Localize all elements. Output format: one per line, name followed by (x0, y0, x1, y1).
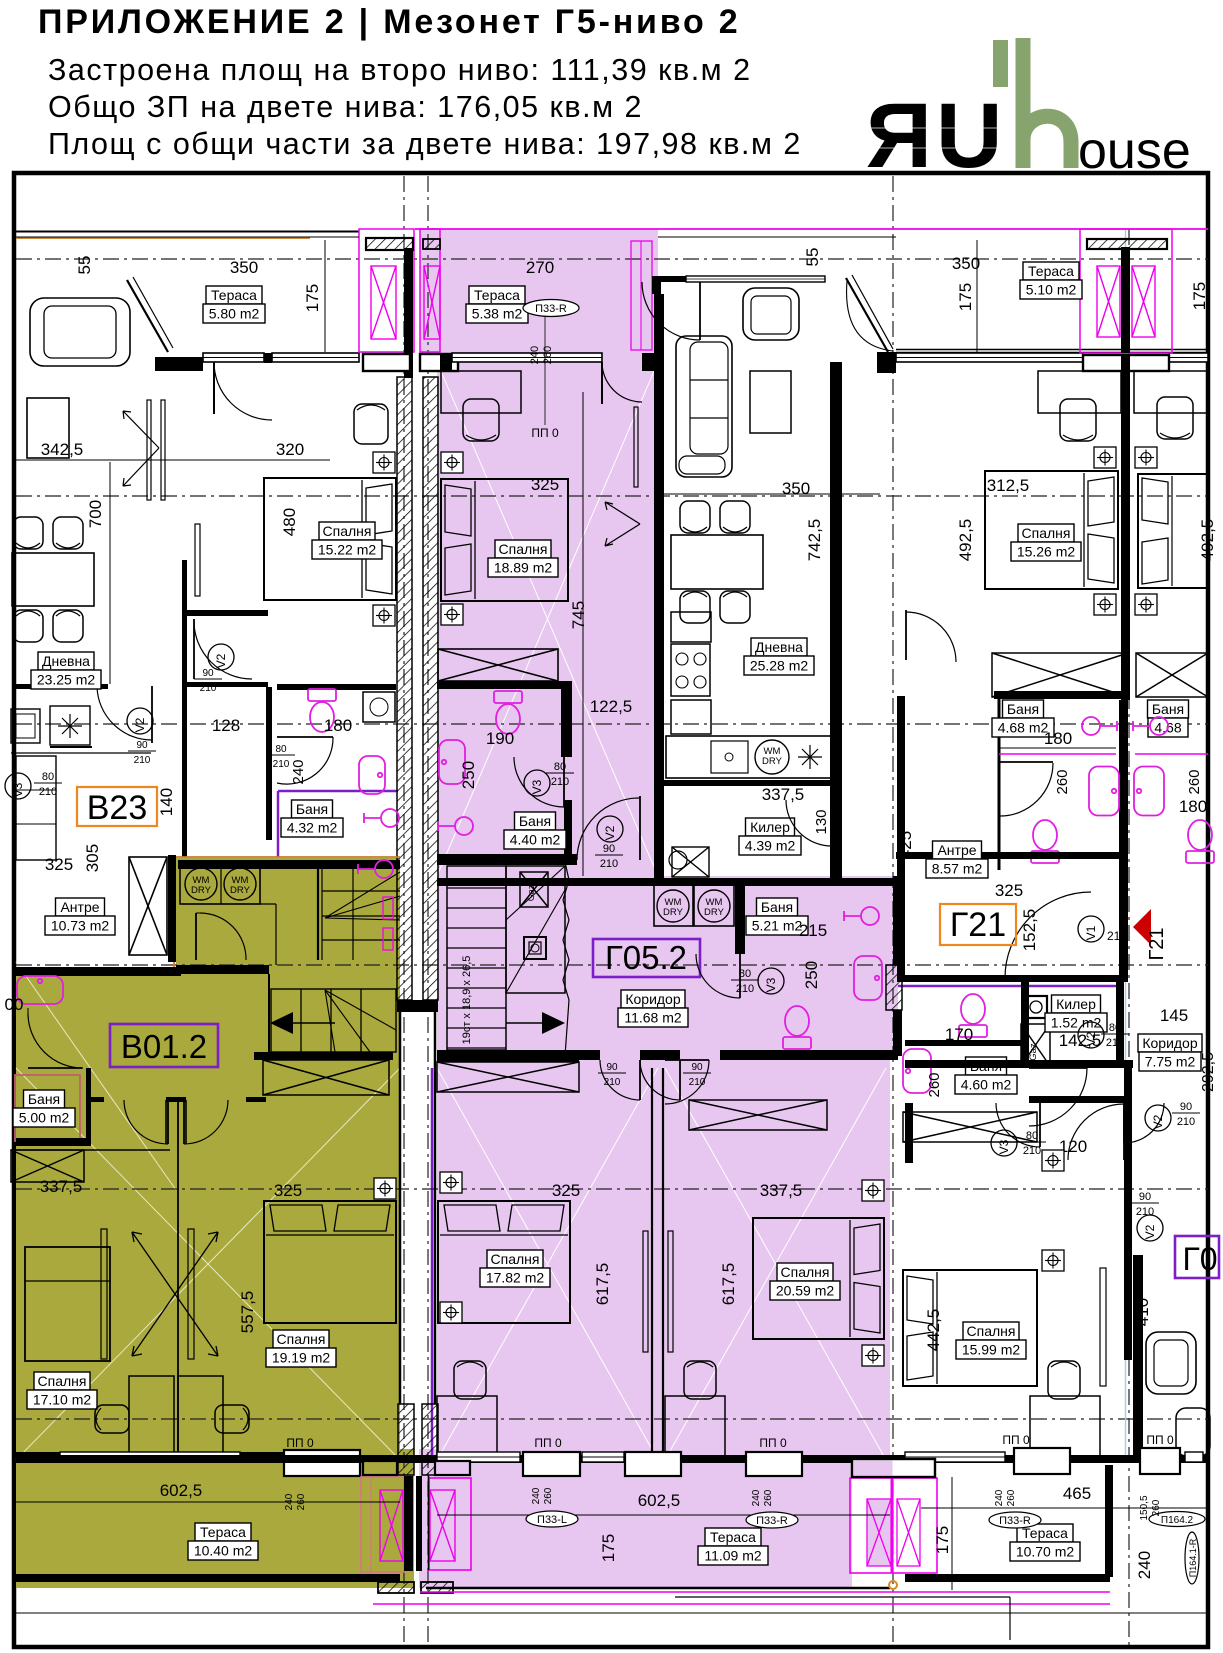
svg-text:Gaz: Gaz (1028, 1043, 1039, 1061)
svg-text:4.39 m2: 4.39 m2 (745, 838, 796, 854)
svg-text:Коридор: Коридор (625, 991, 681, 1007)
svg-text:325: 325 (995, 881, 1023, 900)
svg-text:ПП 0: ПП 0 (759, 1436, 787, 1450)
svg-text:Коридор: Коридор (1142, 1035, 1198, 1051)
svg-text:175: 175 (599, 1534, 618, 1562)
svg-text:17.10 m2: 17.10 m2 (33, 1392, 92, 1408)
svg-text:210: 210 (200, 683, 217, 694)
svg-text:80: 80 (42, 771, 54, 783)
svg-text:215: 215 (799, 921, 827, 940)
svg-text:492,5: 492,5 (956, 519, 975, 562)
svg-text:Дневна: Дневна (42, 653, 90, 669)
svg-text:240: 240 (994, 1489, 1005, 1506)
svg-text:90: 90 (691, 1062, 703, 1073)
svg-text:90: 90 (1180, 1101, 1192, 1113)
svg-text:Тераса: Тераса (211, 287, 257, 303)
svg-text:175: 175 (956, 283, 975, 311)
svg-text:130: 130 (813, 809, 830, 834)
svg-text:180: 180 (1179, 797, 1207, 816)
svg-text:260: 260 (763, 1489, 774, 1506)
svg-text:260: 260 (543, 1487, 554, 1504)
svg-text:Антре: Антре (60, 899, 99, 915)
svg-text:90: 90 (136, 740, 148, 751)
svg-text:Спалня: Спалня (323, 523, 372, 539)
svg-text:Тераса: Тераса (1028, 263, 1074, 279)
svg-text:80: 80 (275, 744, 287, 755)
svg-text:210: 210 (1107, 929, 1127, 943)
svg-text:210: 210 (273, 759, 290, 770)
svg-text:617,5: 617,5 (719, 1263, 738, 1306)
svg-text:150,5: 150,5 (1139, 1495, 1150, 1520)
svg-text:240: 240 (529, 346, 541, 364)
svg-text:17.82 m2: 17.82 m2 (486, 1270, 545, 1286)
svg-text:10.73 m2: 10.73 m2 (51, 918, 110, 934)
svg-text:90: 90 (603, 843, 615, 855)
svg-text:V2: V2 (214, 653, 228, 668)
svg-text:10.70 m2: 10.70 m2 (1016, 1544, 1075, 1560)
svg-text:Баня: Баня (1007, 701, 1039, 717)
svg-text:4.32 m2: 4.32 m2 (287, 820, 338, 836)
svg-text:П33-R: П33-R (999, 1515, 1031, 1527)
svg-text:337,5: 337,5 (760, 1181, 803, 1200)
svg-text:19.19 m2: 19.19 m2 (272, 1350, 331, 1366)
svg-text:Спалня: Спалня (38, 1373, 87, 1389)
svg-text:250: 250 (802, 961, 821, 989)
svg-text:Спалня: Спалня (499, 541, 548, 557)
svg-text:23.25 m2: 23.25 m2 (37, 672, 96, 688)
svg-text:Баня: Баня (519, 813, 551, 829)
svg-text:260: 260 (1151, 1499, 1162, 1516)
svg-text:Г21: Г21 (1146, 927, 1168, 960)
svg-text:80: 80 (739, 968, 751, 980)
svg-text:П33-L: П33-L (537, 1514, 567, 1526)
svg-text:19ст x 18,9 x 26,5: 19ст x 18,9 x 26,5 (461, 956, 473, 1045)
svg-text:ПРИЛОЖЕНИЕ 2 | Мезонет Г5-ниво: ПРИЛОЖЕНИЕ 2 | Мезонет Г5-ниво 2 (38, 3, 741, 41)
svg-text:8.57 m2: 8.57 m2 (932, 861, 983, 877)
svg-text:312,5: 312,5 (987, 476, 1030, 495)
svg-text:140: 140 (157, 788, 176, 816)
svg-text:25.28 m2: 25.28 m2 (750, 658, 809, 674)
svg-text:240: 240 (531, 1487, 542, 1504)
svg-text:7.75 m2: 7.75 m2 (1145, 1054, 1196, 1070)
svg-text:55: 55 (75, 256, 94, 275)
svg-text:240: 240 (1135, 1551, 1154, 1579)
svg-text:210: 210 (604, 1077, 621, 1088)
svg-text:Килер: Килер (750, 819, 790, 835)
svg-text:DRY: DRY (663, 907, 684, 918)
svg-text:260: 260 (1054, 769, 1071, 794)
svg-text:465: 465 (1063, 1484, 1091, 1503)
svg-text:15.22 m2: 15.22 m2 (318, 542, 377, 558)
svg-text:V3: V3 (530, 779, 544, 794)
svg-text:480: 480 (280, 508, 299, 536)
svg-text:Баня: Баня (761, 899, 793, 915)
svg-text:Застроена площ на второ ниво:: Застроена площ на второ ниво: 111,39 кв.… (48, 53, 752, 87)
svg-text:90: 90 (606, 1062, 618, 1073)
svg-text:240: 240 (751, 1489, 762, 1506)
svg-text:П164.1-R: П164.1-R (1188, 1538, 1198, 1577)
svg-text:210: 210 (551, 776, 569, 788)
svg-text:V2: V2 (603, 825, 617, 840)
svg-text:175: 175 (303, 284, 322, 312)
svg-text:240: 240 (284, 1493, 295, 1510)
svg-text:325: 325 (531, 475, 559, 494)
svg-text:602,5: 602,5 (638, 1491, 681, 1510)
svg-text:4.68 m2: 4.68 m2 (998, 720, 1049, 736)
svg-text:V2: V2 (133, 717, 147, 732)
svg-text:Антре: Антре (937, 842, 976, 858)
svg-text:DRY: DRY (762, 756, 783, 767)
svg-text:11.09 m2: 11.09 m2 (704, 1548, 762, 1564)
svg-text:Gaz: Gaz (526, 884, 536, 901)
svg-text:ПП 0: ПП 0 (286, 1436, 314, 1450)
svg-text:В01.2: В01.2 (121, 1028, 207, 1065)
svg-text:90: 90 (1139, 1191, 1151, 1203)
svg-text:170: 170 (945, 1025, 973, 1044)
svg-text:180: 180 (1044, 729, 1072, 748)
svg-text:80: 80 (554, 761, 566, 773)
svg-text:90: 90 (202, 668, 214, 679)
svg-text:260: 260 (542, 346, 554, 364)
svg-text:210: 210 (39, 786, 57, 798)
svg-text:557,5: 557,5 (238, 1291, 257, 1334)
svg-text:5.21 m2: 5.21 m2 (752, 918, 803, 934)
svg-text:П33-R: П33-R (756, 1515, 788, 1527)
svg-text:DRY: DRY (230, 885, 251, 896)
svg-text:4.40 m2: 4.40 m2 (510, 832, 561, 848)
svg-text:442,5: 442,5 (924, 1309, 943, 1352)
svg-text:55: 55 (803, 248, 822, 267)
svg-text:260: 260 (1186, 769, 1203, 794)
svg-text:700: 700 (86, 500, 105, 528)
svg-text:Общо ЗП на двете нива: 176,05: Общо ЗП на двете нива: 176,05 кв.м 2 (48, 90, 643, 124)
svg-text:325: 325 (45, 855, 73, 874)
svg-text:617,5: 617,5 (593, 1263, 612, 1306)
svg-text:350: 350 (952, 254, 980, 273)
svg-text:210: 210 (1136, 1206, 1154, 1218)
svg-text:250: 250 (459, 761, 478, 789)
svg-text:210: 210 (736, 983, 754, 995)
svg-text:Дневна: Дневна (755, 639, 803, 655)
svg-text:240: 240 (290, 759, 307, 784)
svg-text:320: 320 (276, 440, 304, 459)
svg-text:Спалня: Спалня (1022, 525, 1071, 541)
svg-text:Баня: Баня (28, 1091, 60, 1107)
svg-text:5.10 m2: 5.10 m2 (1026, 282, 1077, 298)
svg-text:5.38 m2: 5.38 m2 (472, 306, 523, 322)
svg-text:П164.2: П164.2 (1161, 1515, 1194, 1526)
svg-text:342,5: 342,5 (41, 440, 84, 459)
svg-text:Баня: Баня (296, 801, 328, 817)
svg-text:Баня: Баня (1152, 701, 1184, 717)
svg-text:Спалня: Спалня (781, 1264, 830, 1280)
svg-text:350: 350 (782, 479, 810, 498)
svg-text:602,5: 602,5 (160, 1481, 203, 1500)
svg-text:128: 128 (212, 716, 240, 735)
svg-text:337,5: 337,5 (762, 785, 805, 804)
svg-text:V2: V2 (1084, 1031, 1098, 1046)
svg-text:492,5: 492,5 (1198, 519, 1217, 562)
svg-text:В23: В23 (87, 789, 148, 827)
svg-text:Тераса: Тераса (200, 1524, 246, 1540)
svg-text:210: 210 (1177, 1116, 1195, 1128)
svg-text:5.00 m2: 5.00 m2 (19, 1110, 70, 1126)
svg-text:Спалня: Спалня (491, 1251, 540, 1267)
svg-text:Г05.2: Г05.2 (605, 939, 687, 976)
svg-text:Тераса: Тераса (474, 287, 520, 303)
svg-text:Площ с общи части за двете нив: Площ с общи части за двете нива: 197,98 … (48, 127, 802, 161)
svg-text:15.99 m2: 15.99 m2 (962, 1342, 1021, 1358)
svg-text:175: 175 (1190, 282, 1209, 310)
svg-text:270: 270 (526, 258, 554, 277)
svg-text:V3: V3 (11, 782, 25, 797)
svg-text:190: 190 (486, 729, 514, 748)
svg-text:180: 180 (324, 716, 352, 735)
svg-text:5.80 m2: 5.80 m2 (209, 306, 260, 322)
svg-text:305: 305 (83, 844, 102, 872)
svg-text:742,5: 742,5 (805, 519, 824, 562)
svg-text:Спалня: Спалня (277, 1331, 326, 1347)
svg-text:260: 260 (926, 1072, 943, 1097)
svg-text:V2: V2 (1151, 1114, 1165, 1129)
svg-text:Г21: Г21 (950, 906, 1006, 944)
svg-text:337,5: 337,5 (40, 1177, 83, 1196)
svg-text:V2: V2 (1143, 1224, 1157, 1239)
svg-text:ПП 0: ПП 0 (1146, 1433, 1174, 1447)
svg-text:Тераса: Тераса (1022, 1525, 1068, 1541)
svg-text:Тераса: Тераса (710, 1529, 756, 1545)
svg-text:745: 745 (569, 601, 588, 629)
svg-text:ПП 0: ПП 0 (534, 1436, 562, 1450)
svg-text:152,5: 152,5 (1020, 909, 1039, 952)
svg-text:П33-R: П33-R (535, 303, 567, 315)
svg-text:ПП 0: ПП 0 (531, 426, 559, 440)
svg-text:18.89 m2: 18.89 m2 (494, 560, 553, 576)
svg-text:00: 00 (5, 995, 24, 1014)
svg-text:V3: V3 (764, 977, 778, 992)
svg-text:20.59 m2: 20.59 m2 (776, 1283, 835, 1299)
svg-text:325: 325 (552, 1181, 580, 1200)
svg-text:325: 325 (274, 1181, 302, 1200)
svg-text:210: 210 (600, 858, 618, 870)
svg-text:4.60 m2: 4.60 m2 (961, 1077, 1012, 1093)
svg-text:Килер: Килер (1056, 996, 1096, 1012)
svg-text:292,5: 292,5 (1200, 1052, 1217, 1092)
svg-text:175: 175 (933, 1526, 952, 1554)
svg-text:260: 260 (296, 1493, 307, 1510)
svg-text:Г0: Г0 (1182, 1241, 1217, 1277)
svg-text:DRY: DRY (704, 907, 725, 918)
svg-text:11.68 m2: 11.68 m2 (624, 1010, 682, 1026)
svg-text:Спалня: Спалня (967, 1323, 1016, 1339)
svg-text:350: 350 (230, 258, 258, 277)
svg-text:145: 145 (1160, 1006, 1188, 1025)
svg-text:10.40 m2: 10.40 m2 (194, 1543, 253, 1559)
svg-text:V1: V1 (1084, 925, 1098, 940)
svg-text:260: 260 (1006, 1489, 1017, 1506)
svg-text:122,5: 122,5 (590, 697, 633, 716)
svg-text:DRY: DRY (191, 885, 212, 896)
svg-text:15.26 m2: 15.26 m2 (1017, 544, 1076, 560)
svg-text:ПП 0: ПП 0 (1002, 1433, 1030, 1447)
svg-text:210: 210 (134, 755, 151, 766)
